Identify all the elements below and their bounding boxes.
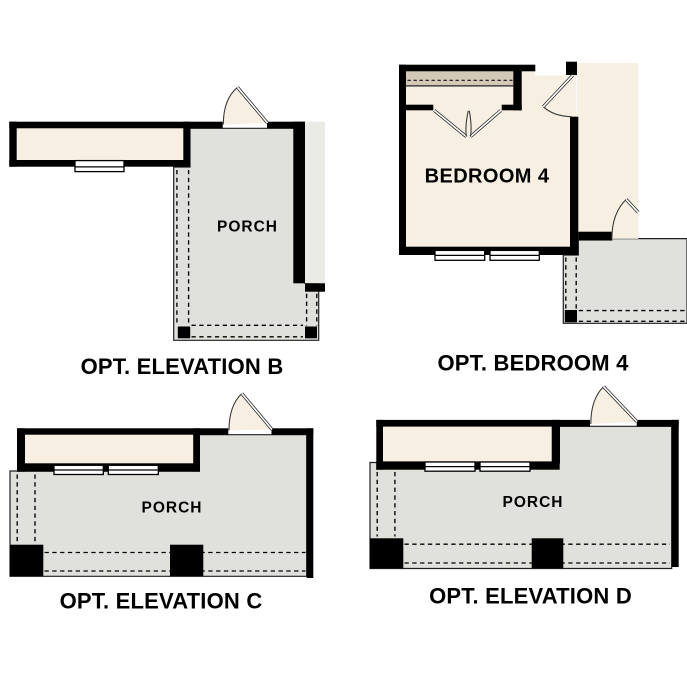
wall-stub: [305, 283, 325, 291]
wall: [399, 65, 535, 72]
wall-jamb: [566, 62, 577, 75]
plan-elevation-b: PORCH OPT. ELEVATION B: [9, 87, 325, 379]
bedroom-4-caption: OPT. BEDROOM 4: [437, 351, 629, 376]
door-swing-fill: [223, 87, 267, 124]
porch-post: [170, 545, 203, 577]
porch-post: [370, 538, 403, 568]
window-symbol: [425, 462, 475, 471]
porch-post: [532, 538, 564, 568]
floor-plan-sheet: PORCH OPT. ELEVATION B: [0, 0, 687, 687]
wall-opening-gap: [535, 71, 566, 76]
wall: [399, 65, 406, 255]
porch-post: [10, 545, 43, 577]
wall: [307, 428, 314, 578]
house-interior: [17, 128, 184, 160]
wall: [552, 420, 560, 464]
porch-room-label: PORCH: [142, 500, 203, 517]
wall: [9, 122, 222, 129]
window-symbol: [490, 250, 539, 260]
adjacent-slab: [305, 122, 325, 284]
door-swing-fill: [591, 387, 637, 424]
bedroom-room-label: BEDROOM 4: [425, 166, 550, 188]
porch-post: [565, 310, 577, 322]
porch-room-label: PORCH: [503, 494, 564, 511]
porch-post: [178, 327, 190, 339]
plan-bedroom-4: BEDROOM 4 OPT. BEDROOM 4: [399, 62, 687, 376]
window-symbol: [75, 161, 124, 172]
wall: [672, 420, 679, 567]
wall: [9, 122, 16, 167]
wall: [399, 247, 578, 255]
wall: [570, 117, 578, 255]
plan-elevation-c: PORCH OPT. ELEVATION C: [10, 394, 313, 614]
closet-shelf: [406, 71, 513, 85]
elevation-c-caption: OPT. ELEVATION C: [60, 589, 263, 614]
elevation-d-caption: OPT. ELEVATION D: [429, 584, 632, 609]
floor-plan-canvas: PORCH OPT. ELEVATION B: [0, 0, 687, 687]
closet-wall: [502, 105, 522, 111]
house-interior: [383, 426, 552, 461]
wall: [578, 232, 611, 240]
window-symbol: [435, 250, 485, 260]
door-swing-fill: [229, 394, 272, 431]
hallway-interior: [577, 63, 639, 239]
window-symbol: [54, 465, 103, 474]
window-symbol: [108, 465, 158, 474]
closet-wall: [513, 65, 521, 110]
wall: [193, 428, 200, 471]
wall: [183, 122, 190, 167]
porch-room-label: PORCH: [217, 219, 278, 236]
elevation-b-caption: OPT. ELEVATION B: [81, 354, 284, 379]
plan-elevation-d: PORCH OPT. ELEVATION D: [370, 387, 679, 609]
window-symbol: [480, 462, 530, 471]
porch-post: [305, 327, 317, 339]
wall: [293, 122, 305, 284]
house-interior: [25, 435, 193, 464]
